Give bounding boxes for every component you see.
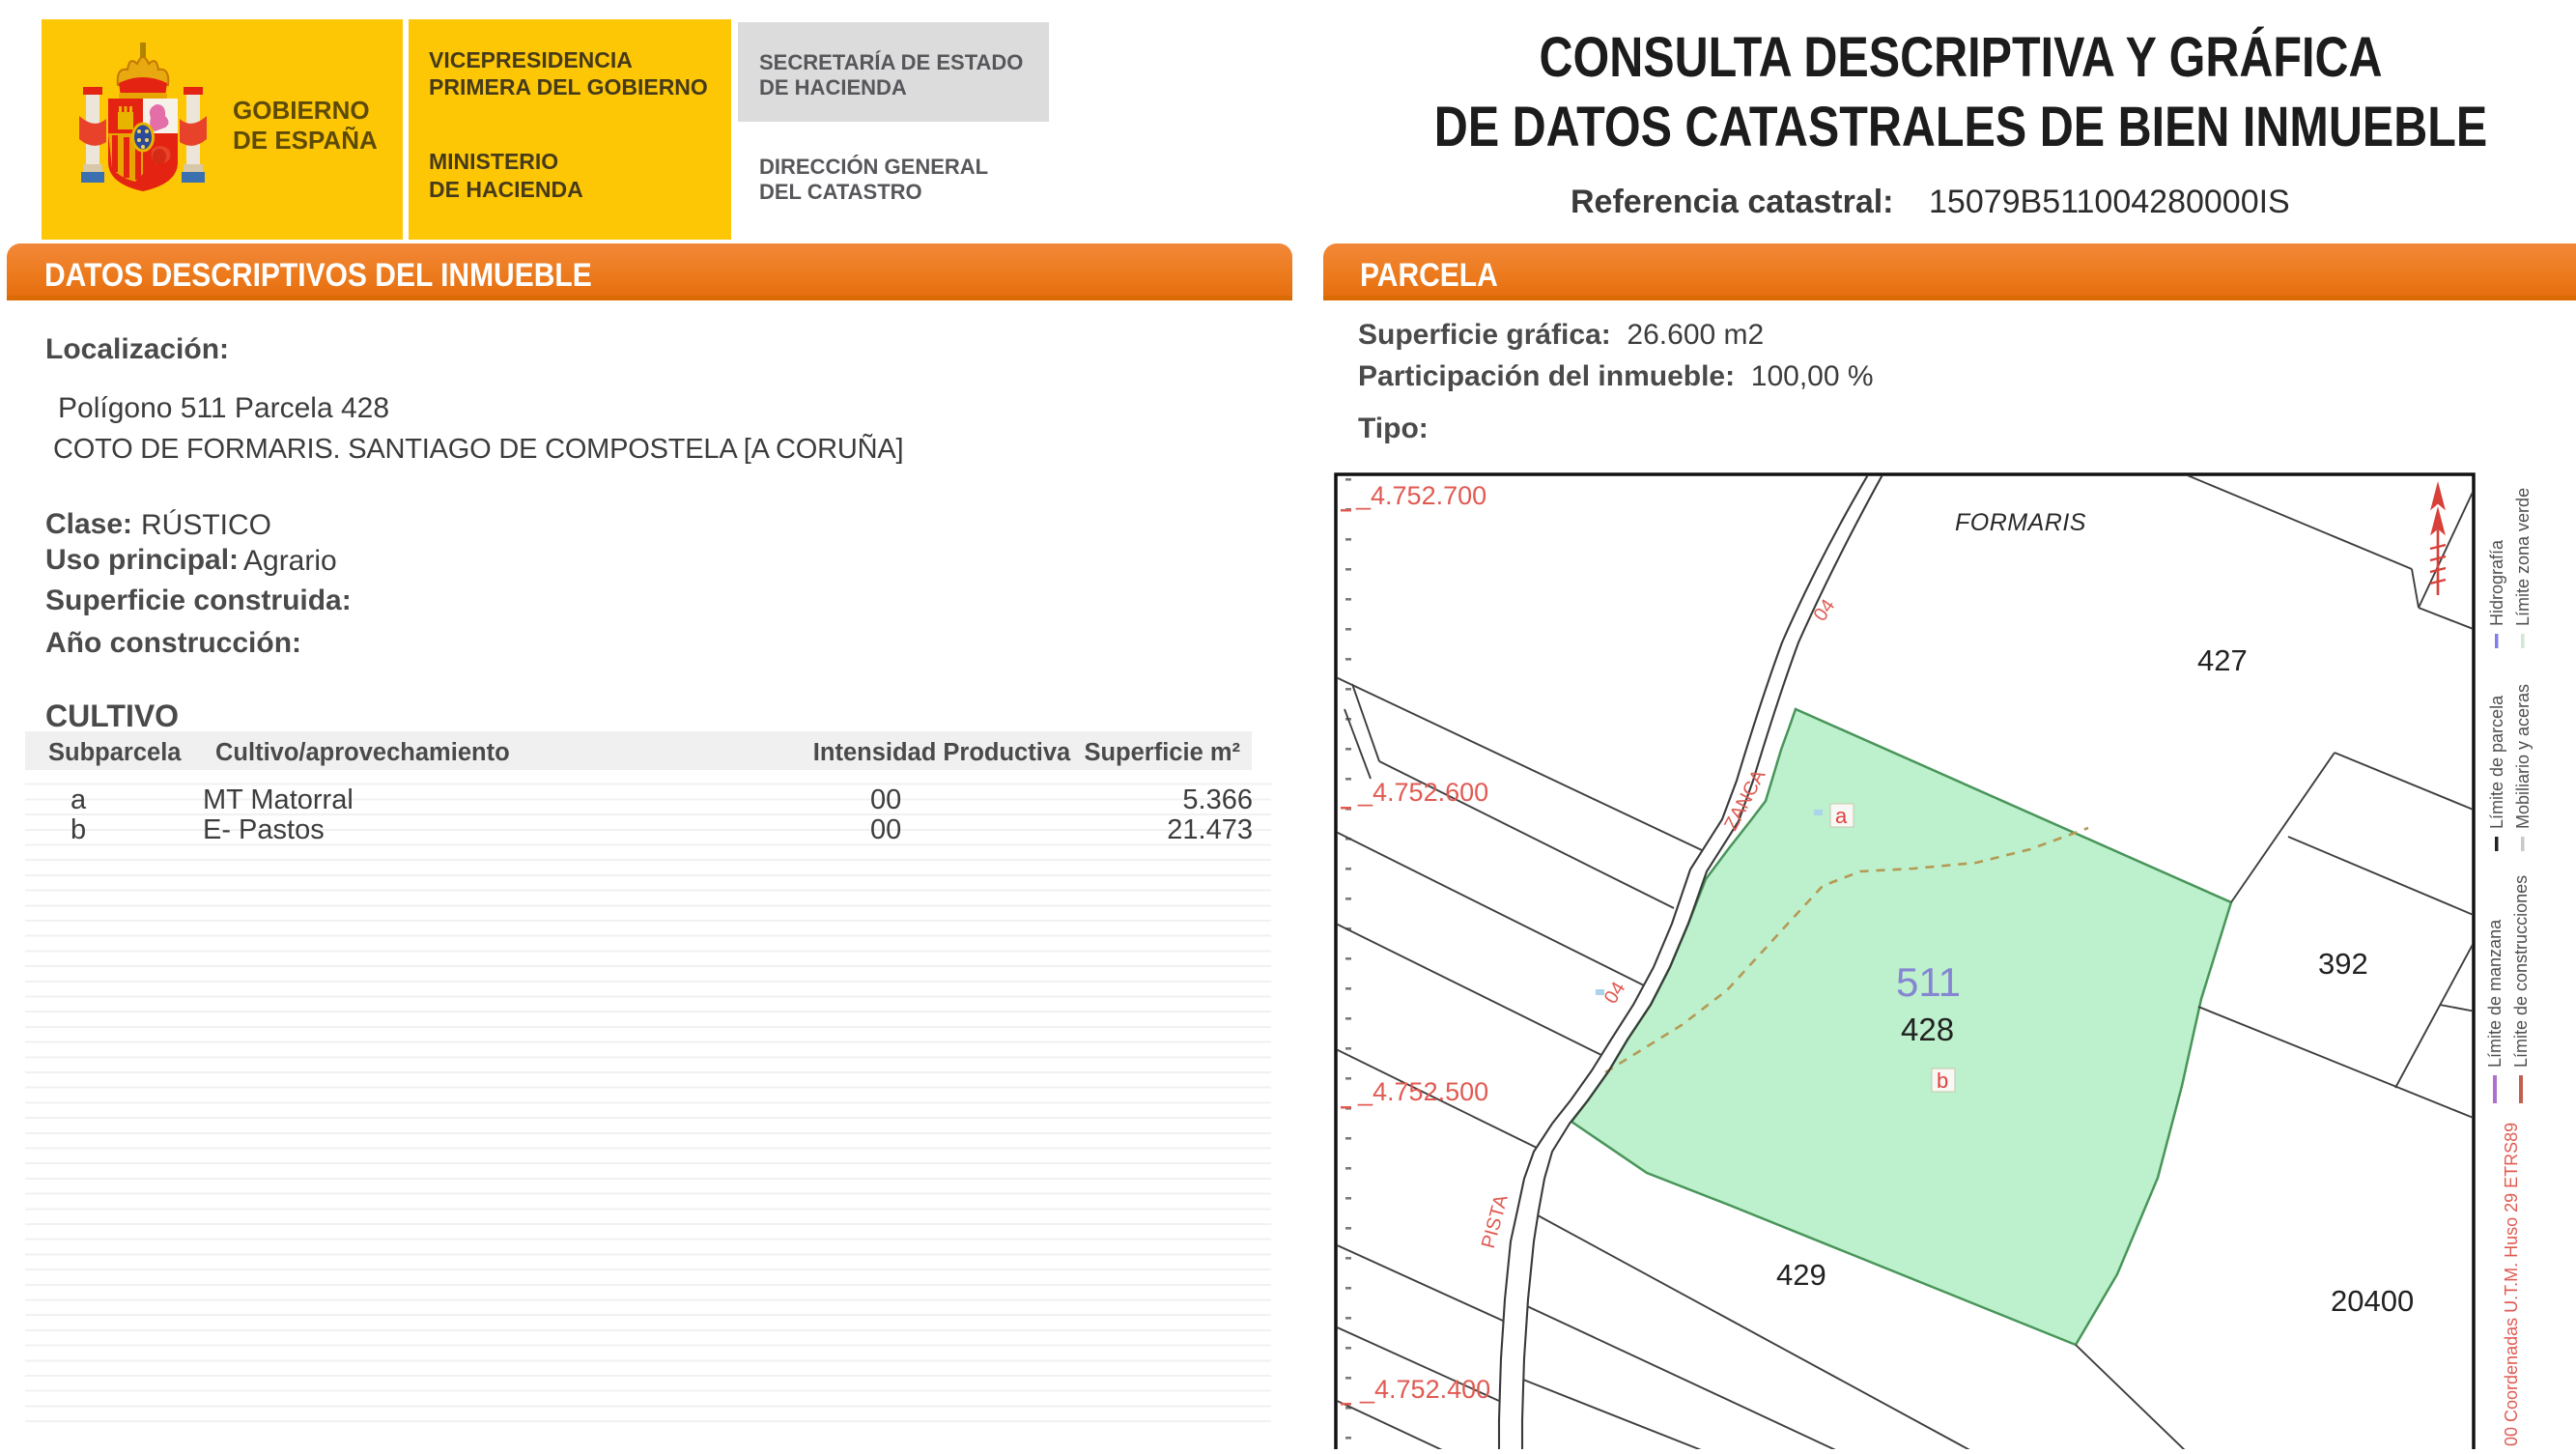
svg-text:00 Coordenadas U.T.M. Huso 29: 00 Coordenadas U.T.M. Huso 29 ETRS89: [2502, 1123, 2521, 1446]
svg-text:b: b: [1937, 1069, 1948, 1093]
svg-text:Límite zona verde: Límite zona verde: [2513, 488, 2533, 626]
svg-text:Hidrografía: Hidrografía: [2487, 539, 2506, 626]
svg-text:429: 429: [1776, 1258, 1826, 1292]
svg-text:a: a: [1835, 804, 1848, 828]
svg-text:Límite de construcciones: Límite de construcciones: [2511, 875, 2531, 1068]
svg-text:511: 511: [1896, 959, 1961, 1005]
svg-text:_4.752.500: _4.752.500: [1357, 1077, 1488, 1106]
svg-text:_4.752.600: _4.752.600: [1357, 778, 1488, 807]
svg-text:_4.752.400: _4.752.400: [1359, 1375, 1490, 1404]
svg-text:428: 428: [1901, 1012, 1954, 1047]
svg-text:Límite de manzana: Límite de manzana: [2485, 919, 2505, 1068]
svg-text:20400: 20400: [2331, 1284, 2414, 1318]
svg-text:FORMARIS: FORMARIS: [1955, 509, 2086, 536]
svg-text:427: 427: [2197, 643, 2248, 677]
svg-text:Mobiliario y aceras: Mobiliario y aceras: [2513, 684, 2533, 829]
svg-text:392: 392: [2318, 947, 2368, 981]
svg-text:Límite de parcela: Límite de parcela: [2487, 695, 2506, 829]
svg-text:_4.752.700: _4.752.700: [1355, 481, 1486, 510]
